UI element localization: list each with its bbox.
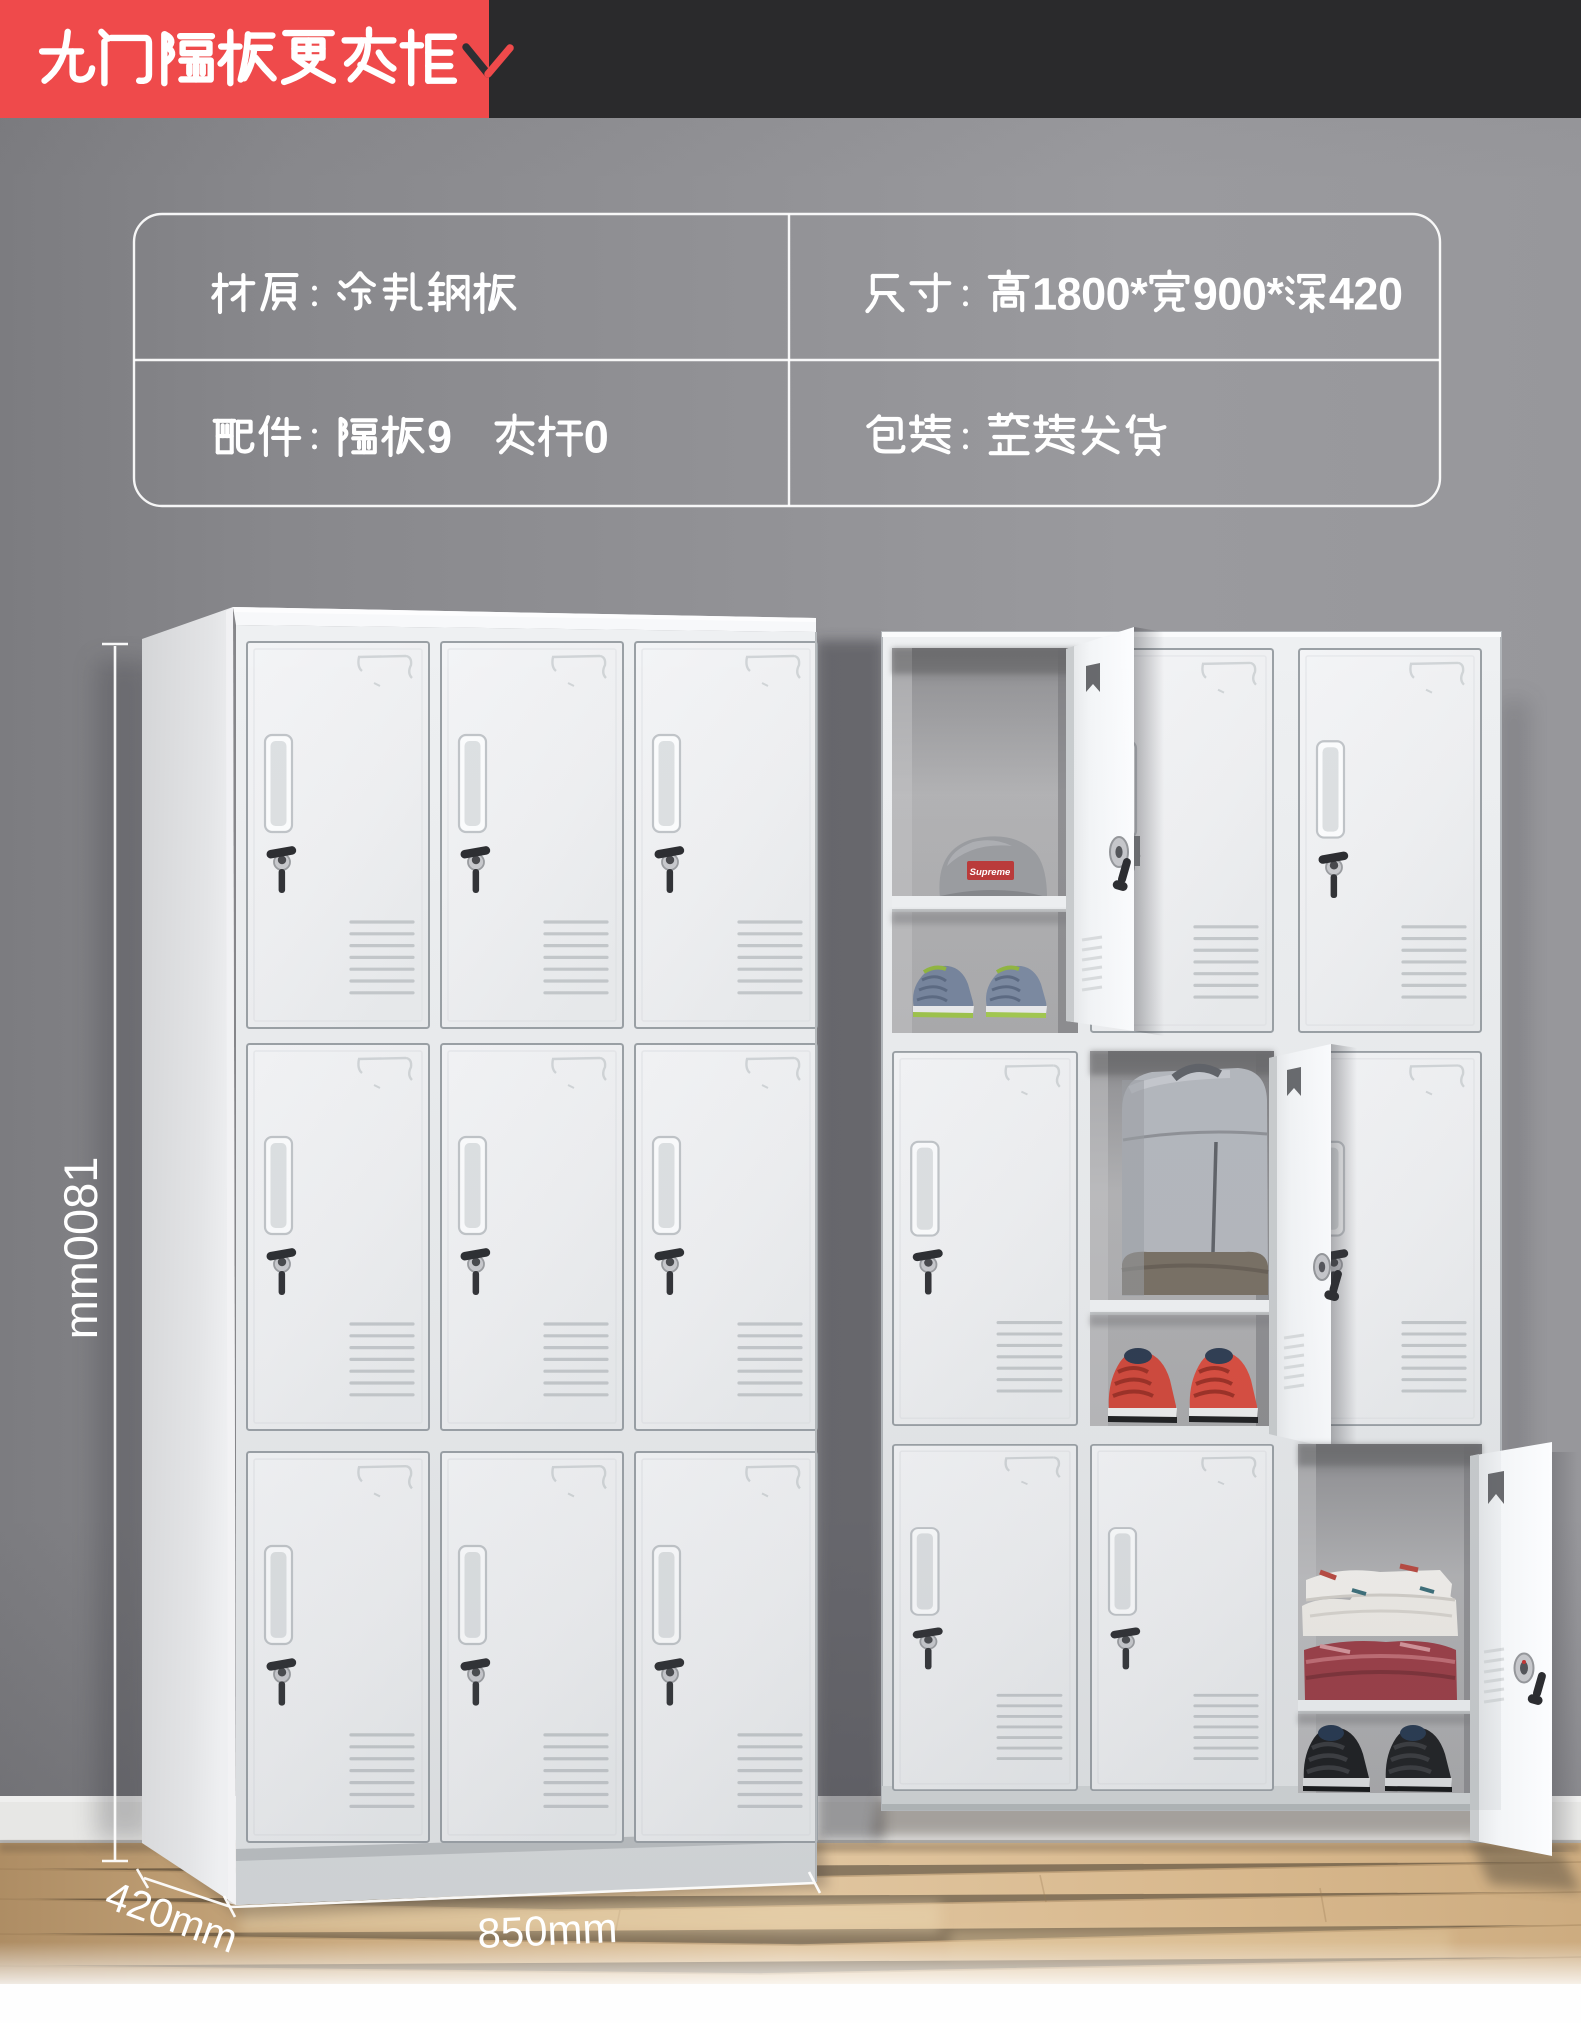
svg-text:1800*: 1800* xyxy=(1032,269,1148,320)
svg-text:900*: 900* xyxy=(1193,269,1285,320)
svg-text:420: 420 xyxy=(1329,269,1403,320)
svg-text:850mm: 850mm xyxy=(476,1904,618,1957)
svg-text:0: 0 xyxy=(584,412,609,463)
svg-text:mm0081: mm0081 xyxy=(54,1157,107,1340)
svg-text:9: 9 xyxy=(427,412,452,463)
